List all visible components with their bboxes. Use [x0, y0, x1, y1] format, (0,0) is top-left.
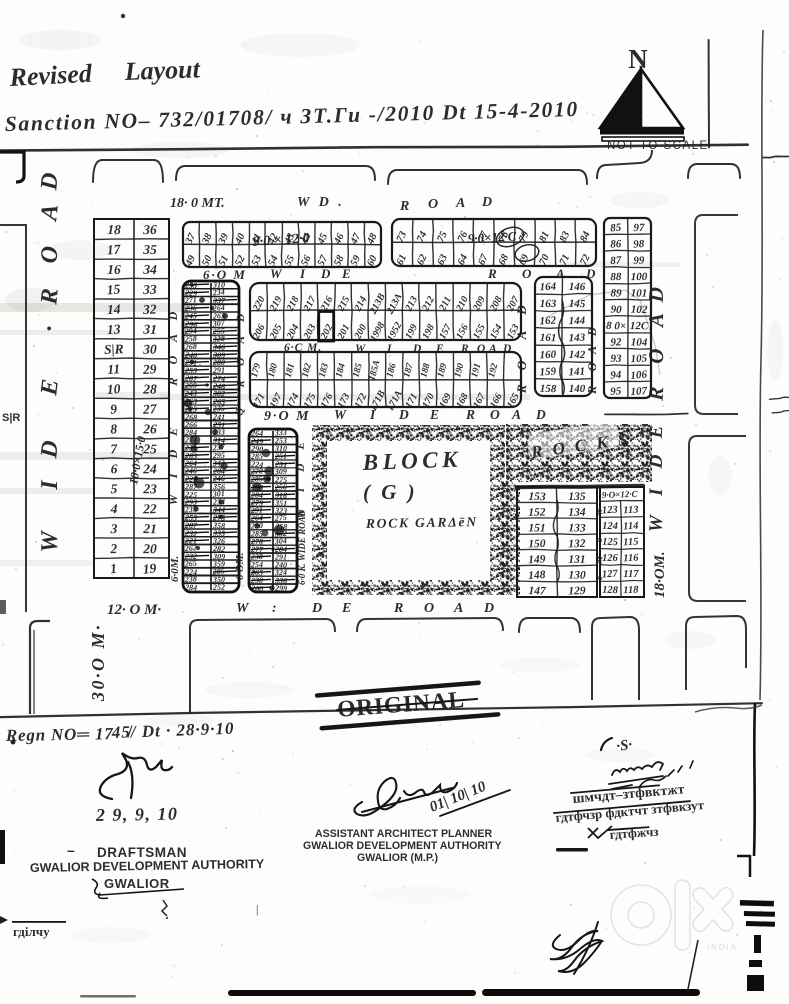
svg-text:11: 11	[107, 361, 121, 377]
svg-text:159: 159	[539, 365, 557, 378]
svg-text:14: 14	[107, 301, 122, 317]
svg-text:126: 126	[602, 553, 619, 564]
svg-text:93: 93	[610, 353, 622, 365]
svg-text:117: 117	[623, 569, 639, 580]
svg-text:9·O×12·C: 9·O×12·C	[602, 489, 639, 500]
svg-text:3: 3	[511, 512, 517, 522]
svg-text:6·0M.: 6·0M.	[169, 556, 181, 582]
svg-text:O: O	[585, 362, 600, 372]
svg-text:Q: Q	[234, 407, 247, 416]
svg-text:N: N	[628, 44, 648, 74]
svg-text:R: R	[235, 379, 248, 389]
svg-text:10: 10	[106, 381, 121, 397]
svg-text:E: E	[429, 407, 439, 422]
svg-text:89: 89	[610, 287, 622, 299]
svg-text:152: 152	[528, 507, 546, 519]
svg-text:24: 24	[142, 461, 157, 476]
svg-text:20: 20	[142, 541, 157, 556]
svg-text:8 0×: 8 0×	[606, 320, 626, 333]
svg-text:D: D	[36, 172, 63, 192]
svg-text:A: A	[166, 334, 180, 343]
svg-text:284: 284	[184, 583, 197, 593]
svg-text:164: 164	[539, 281, 557, 294]
svg-text:R: R	[514, 383, 530, 394]
svg-text:R: R	[460, 343, 469, 355]
svg-text:O: O	[490, 407, 500, 422]
svg-text:O: O	[522, 266, 532, 281]
svg-text:O: O	[37, 246, 64, 264]
svg-text:33: 33	[142, 282, 157, 297]
svg-text:6·0 K. WIDE ROAD: 6·0 K. WIDE ROAD	[297, 509, 307, 585]
svg-text:D: D	[311, 601, 322, 616]
svg-text:D: D	[166, 311, 180, 321]
svg-text:113: 113	[623, 505, 639, 517]
svg-text:141: 141	[568, 366, 585, 379]
svg-text:▴: ▴	[626, 448, 630, 457]
svg-text:12· O M·: 12· O M·	[107, 602, 161, 618]
svg-text:124: 124	[602, 521, 618, 532]
svg-text:W: W	[37, 530, 63, 553]
svg-text:D: D	[36, 439, 64, 460]
svg-text:·S·: ·S·	[615, 737, 633, 755]
svg-text:125: 125	[602, 537, 618, 548]
svg-text:34: 34	[142, 262, 157, 277]
svg-text:▴: ▴	[508, 463, 512, 472]
svg-text:A: A	[235, 336, 248, 345]
svg-text:▴: ▴	[548, 461, 552, 470]
svg-text:E: E	[341, 601, 351, 616]
svg-text:88: 88	[610, 271, 622, 283]
svg-text:29: 29	[142, 361, 158, 377]
svg-text:D: D	[398, 407, 409, 422]
svg-text:162: 162	[539, 315, 557, 328]
svg-text:A: A	[644, 313, 668, 329]
svg-text:151: 151	[528, 522, 545, 534]
svg-text:30·O M·: 30·O M·	[88, 623, 108, 702]
svg-text:I: I	[37, 479, 63, 491]
svg-text:R: R	[36, 287, 63, 306]
svg-text:R: R	[487, 266, 497, 281]
svg-text:5: 5	[111, 481, 118, 496]
svg-text:E: E	[166, 427, 181, 437]
svg-text:D: D	[585, 326, 600, 337]
svg-text:▴: ▴	[520, 425, 524, 434]
svg-text:O: O	[477, 343, 485, 355]
svg-text:O: O	[166, 355, 180, 364]
svg-text:153: 153	[528, 491, 546, 503]
svg-text:D: D	[320, 266, 331, 281]
svg-text:O: O	[424, 601, 434, 616]
svg-text:2: 2	[109, 541, 118, 556]
svg-text:252: 252	[212, 583, 225, 592]
svg-text:R: R	[393, 601, 403, 616]
svg-text:115: 115	[623, 537, 639, 549]
svg-text:140: 140	[569, 383, 586, 395]
svg-text:98: 98	[633, 238, 645, 251]
svg-text:160: 160	[539, 349, 557, 362]
svg-text:A: A	[488, 343, 497, 355]
svg-text:▴: ▴	[350, 425, 354, 434]
svg-text:130: 130	[568, 569, 586, 581]
svg-text:85: 85	[610, 222, 622, 235]
svg-text:W: W	[646, 514, 668, 533]
svg-text:143: 143	[568, 332, 585, 345]
svg-text:127: 127	[602, 568, 619, 580]
svg-text:▴: ▴	[360, 579, 364, 588]
svg-text:▴: ▴	[320, 493, 324, 502]
svg-text:18·OM.: 18·OM.	[652, 551, 668, 598]
svg-text:134: 134	[568, 507, 586, 519]
svg-text:16: 16	[107, 262, 121, 277]
svg-text:A: A	[585, 346, 599, 355]
svg-text:97: 97	[633, 222, 645, 234]
svg-text:D: D	[166, 449, 180, 459]
svg-text:87: 87	[610, 254, 622, 267]
svg-text:D: D	[235, 313, 248, 323]
svg-text:28: 28	[142, 381, 157, 396]
svg-text:D: D	[412, 343, 422, 355]
svg-text:гділчу: гділчу	[13, 924, 50, 939]
svg-text:▴: ▴	[640, 425, 644, 434]
svg-text:W: W	[355, 343, 366, 355]
svg-text:18· 0 MT.: 18· 0 MT.	[170, 196, 225, 211]
svg-text:–: –	[67, 842, 75, 858]
svg-text:▴: ▴	[318, 549, 322, 558]
svg-text:▴: ▴	[499, 558, 503, 567]
svg-text:30: 30	[142, 342, 157, 357]
svg-text:D: D	[295, 463, 308, 473]
svg-text:17: 17	[106, 241, 122, 257]
svg-text::: :	[272, 601, 277, 616]
svg-text:8: 8	[110, 421, 118, 436]
svg-text:99: 99	[633, 255, 645, 267]
svg-text:GWALIOR (M.P.): GWALIOR (M.P.)	[357, 852, 438, 864]
svg-text:A: A	[455, 196, 465, 211]
svg-text:149: 149	[528, 553, 546, 566]
svg-text:158: 158	[540, 383, 557, 396]
svg-text:132: 132	[568, 538, 586, 551]
svg-text:22: 22	[142, 501, 157, 516]
svg-text:W: W	[334, 407, 347, 422]
svg-text:D: D	[502, 343, 512, 355]
svg-text:R: R	[465, 407, 475, 422]
svg-text:6·OM.: 6·OM.	[235, 553, 246, 580]
svg-text:W: W	[270, 266, 283, 281]
svg-text:94: 94	[610, 369, 622, 382]
svg-text:31: 31	[142, 321, 157, 336]
svg-text:26: 26	[142, 421, 157, 436]
svg-text:32: 32	[142, 302, 157, 318]
svg-text:123: 123	[602, 504, 618, 516]
svg-text:133: 133	[568, 522, 586, 534]
svg-text:114: 114	[623, 520, 639, 532]
svg-text:13: 13	[107, 321, 122, 337]
svg-text:W D .: W D .	[297, 195, 345, 210]
svg-text:27: 27	[142, 401, 159, 417]
svg-text:I: I	[386, 343, 392, 355]
svg-text:▴: ▴	[420, 581, 424, 590]
svg-text:146: 146	[569, 281, 586, 293]
svg-text:86: 86	[610, 238, 622, 251]
svg-text:Revised: Revised	[8, 59, 94, 92]
svg-text:104: 104	[631, 336, 648, 348]
svg-text:145: 145	[569, 298, 586, 311]
svg-text:150: 150	[528, 538, 546, 550]
svg-text:E: E	[295, 442, 308, 451]
svg-text:▴: ▴	[602, 463, 606, 472]
svg-text:23: 23	[142, 481, 157, 496]
svg-text:36: 36	[142, 222, 157, 237]
svg-text:35: 35	[142, 242, 157, 257]
svg-text:18: 18	[107, 222, 121, 237]
svg-text:100: 100	[631, 271, 648, 283]
svg-text:D: D	[644, 286, 669, 303]
svg-text:W: W	[166, 493, 180, 505]
svg-text:R: R	[399, 199, 409, 214]
svg-text:147: 147	[528, 585, 547, 597]
svg-text:D: D	[481, 195, 492, 210]
svg-text:S|R: S|R	[2, 412, 20, 424]
svg-text:Layout: Layout	[123, 54, 201, 86]
svg-text:INDIA: INDIA	[707, 942, 738, 952]
svg-text:9·0×12·C: 9·0×12·C	[467, 228, 517, 246]
svg-text:148: 148	[528, 569, 546, 582]
svg-text:|: |	[256, 902, 258, 916]
svg-text:92: 92	[610, 336, 622, 348]
svg-text:R: R	[585, 386, 599, 395]
svg-text:129: 129	[568, 585, 586, 597]
svg-text:299: 299	[274, 584, 287, 593]
svg-text:O: O	[235, 357, 248, 366]
svg-text:O: O	[428, 197, 438, 212]
svg-text:D: D	[483, 601, 494, 616]
svg-text:95: 95	[610, 385, 622, 398]
svg-text:E: E	[36, 378, 64, 398]
svg-text:106: 106	[630, 369, 648, 382]
svg-text:ASSISTANT ARCHITECT PLANNER: ASSISTANT ARCHITECT PLANNER	[315, 828, 492, 840]
svg-text:144: 144	[568, 315, 585, 328]
svg-text:( G ): ( G )	[363, 480, 418, 504]
svg-text:A: A	[453, 601, 463, 616]
svg-text:GWALIOR DEVELOPMENT AUTHORITY: GWALIOR DEVELOPMENT AUTHORITY	[303, 840, 502, 852]
svg-text:ROCK GARΔēN: ROCK GARΔēN	[365, 514, 478, 531]
svg-text:D: D	[535, 407, 546, 422]
svg-text:GWALIOR: GWALIOR	[104, 876, 170, 891]
svg-text:3: 3	[110, 521, 118, 536]
svg-text:▴: ▴	[455, 423, 459, 432]
svg-text:21: 21	[142, 521, 157, 536]
svg-text:A: A	[555, 266, 565, 281]
svg-text:135: 135	[568, 491, 586, 503]
svg-text:D: D	[514, 305, 529, 316]
svg-text:I: I	[646, 488, 667, 497]
svg-text:·: ·	[37, 325, 63, 332]
svg-text:90: 90	[610, 304, 622, 317]
svg-text:BLOCK: BLOCK	[361, 447, 462, 475]
svg-text:118: 118	[623, 585, 639, 597]
svg-text:2 9, 9, 10: 2 9, 9, 10	[95, 804, 179, 825]
svg-text:S|R: S|R	[104, 341, 124, 357]
svg-text:128: 128	[602, 585, 619, 596]
svg-text:9·O M: 9·O M	[264, 409, 311, 424]
svg-text:▴: ▴	[533, 469, 537, 478]
svg-text:142: 142	[569, 349, 586, 361]
svg-text:W: W	[236, 601, 250, 616]
svg-text:161: 161	[540, 332, 557, 344]
svg-text:131: 131	[568, 554, 585, 566]
svg-text:4: 4	[110, 501, 118, 516]
svg-text:15: 15	[106, 281, 121, 297]
svg-text:A: A	[511, 407, 521, 422]
svg-text:I: I	[295, 487, 307, 493]
svg-text:A: A	[514, 330, 529, 340]
svg-text:R: R	[165, 377, 180, 388]
svg-text:E: E	[341, 266, 351, 281]
svg-text:▴: ▴	[497, 513, 501, 522]
svg-text:6: 6	[111, 461, 118, 476]
svg-text:I: I	[369, 407, 376, 422]
svg-text:163: 163	[540, 298, 557, 310]
svg-text:Regn NO═ 17: Regn NO═ 17	[5, 724, 115, 745]
svg-text:19: 19	[142, 560, 157, 576]
svg-text:R: R	[644, 386, 669, 402]
svg-text:O: O	[644, 348, 668, 364]
svg-text:I: I	[299, 266, 306, 281]
svg-text:116: 116	[623, 553, 639, 565]
